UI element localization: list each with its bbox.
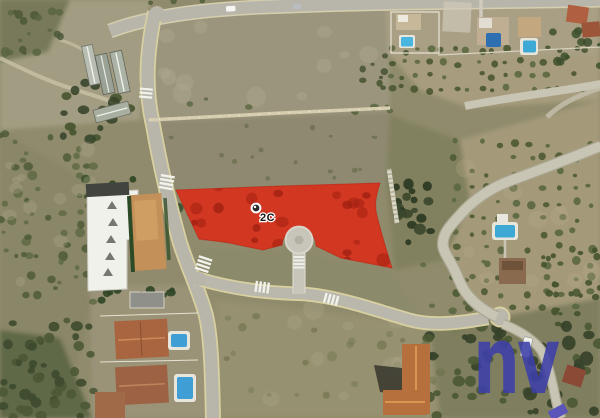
swimming-pool: [171, 334, 187, 347]
swimming-pool: [495, 225, 515, 238]
swimming-pool: [177, 377, 193, 399]
courtyard: [129, 193, 166, 271]
swimming-pool: [523, 41, 536, 53]
car: [226, 6, 236, 12]
car: [293, 4, 302, 9]
crosswalk: [139, 87, 153, 98]
nv-logo-watermark: nv: [473, 307, 559, 416]
satellite-map[interactable]: 2C nv: [0, 0, 600, 418]
swimming-pool: [486, 33, 501, 47]
swimming-pool: [401, 37, 413, 47]
parcel-label: 2C: [260, 212, 275, 224]
